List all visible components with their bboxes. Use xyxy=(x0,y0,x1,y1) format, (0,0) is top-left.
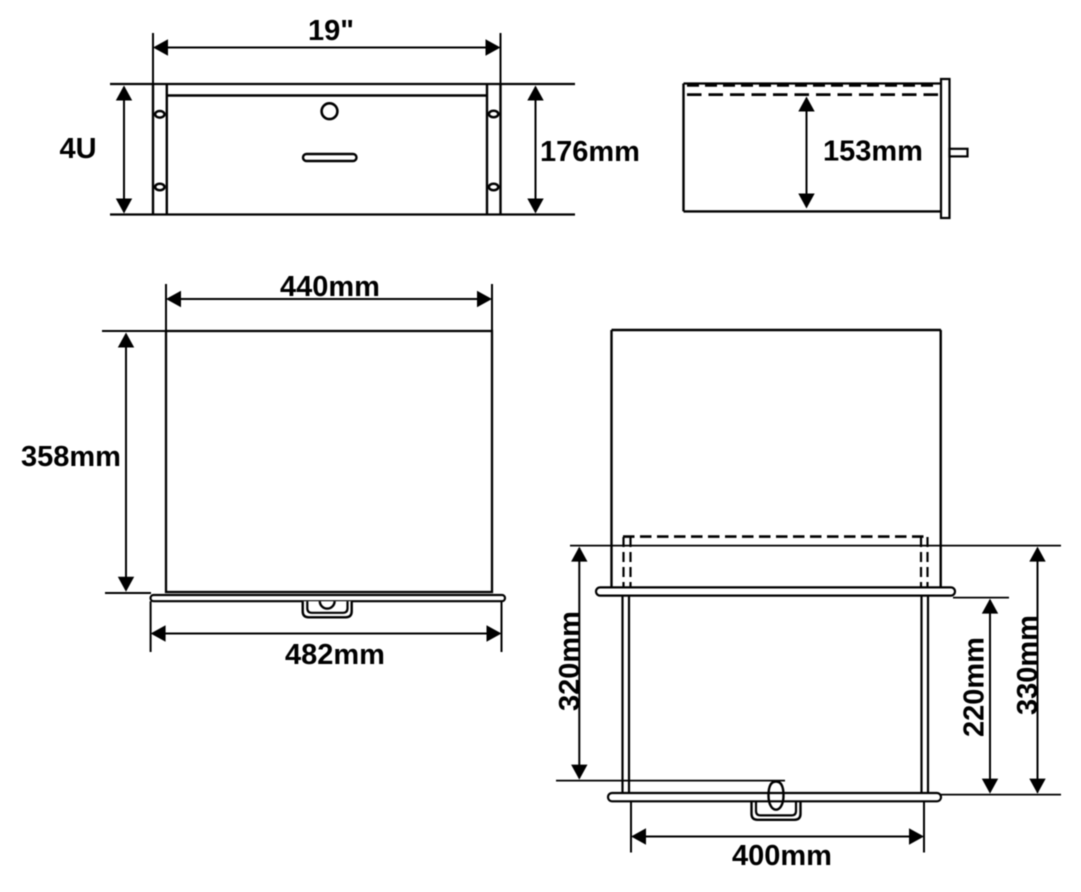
svg-text:176mm: 176mm xyxy=(540,136,640,168)
svg-text:482mm: 482mm xyxy=(285,639,385,671)
svg-text:153mm: 153mm xyxy=(823,136,923,168)
svg-text:19": 19" xyxy=(308,15,354,47)
svg-text:358mm: 358mm xyxy=(21,441,121,473)
svg-text:440mm: 440mm xyxy=(280,271,380,303)
svg-text:4U: 4U xyxy=(59,133,96,165)
svg-text:400mm: 400mm xyxy=(732,840,832,872)
svg-text:320mm: 320mm xyxy=(554,611,586,711)
svg-text:220mm: 220mm xyxy=(959,637,991,737)
svg-text:330mm: 330mm xyxy=(1012,615,1044,715)
